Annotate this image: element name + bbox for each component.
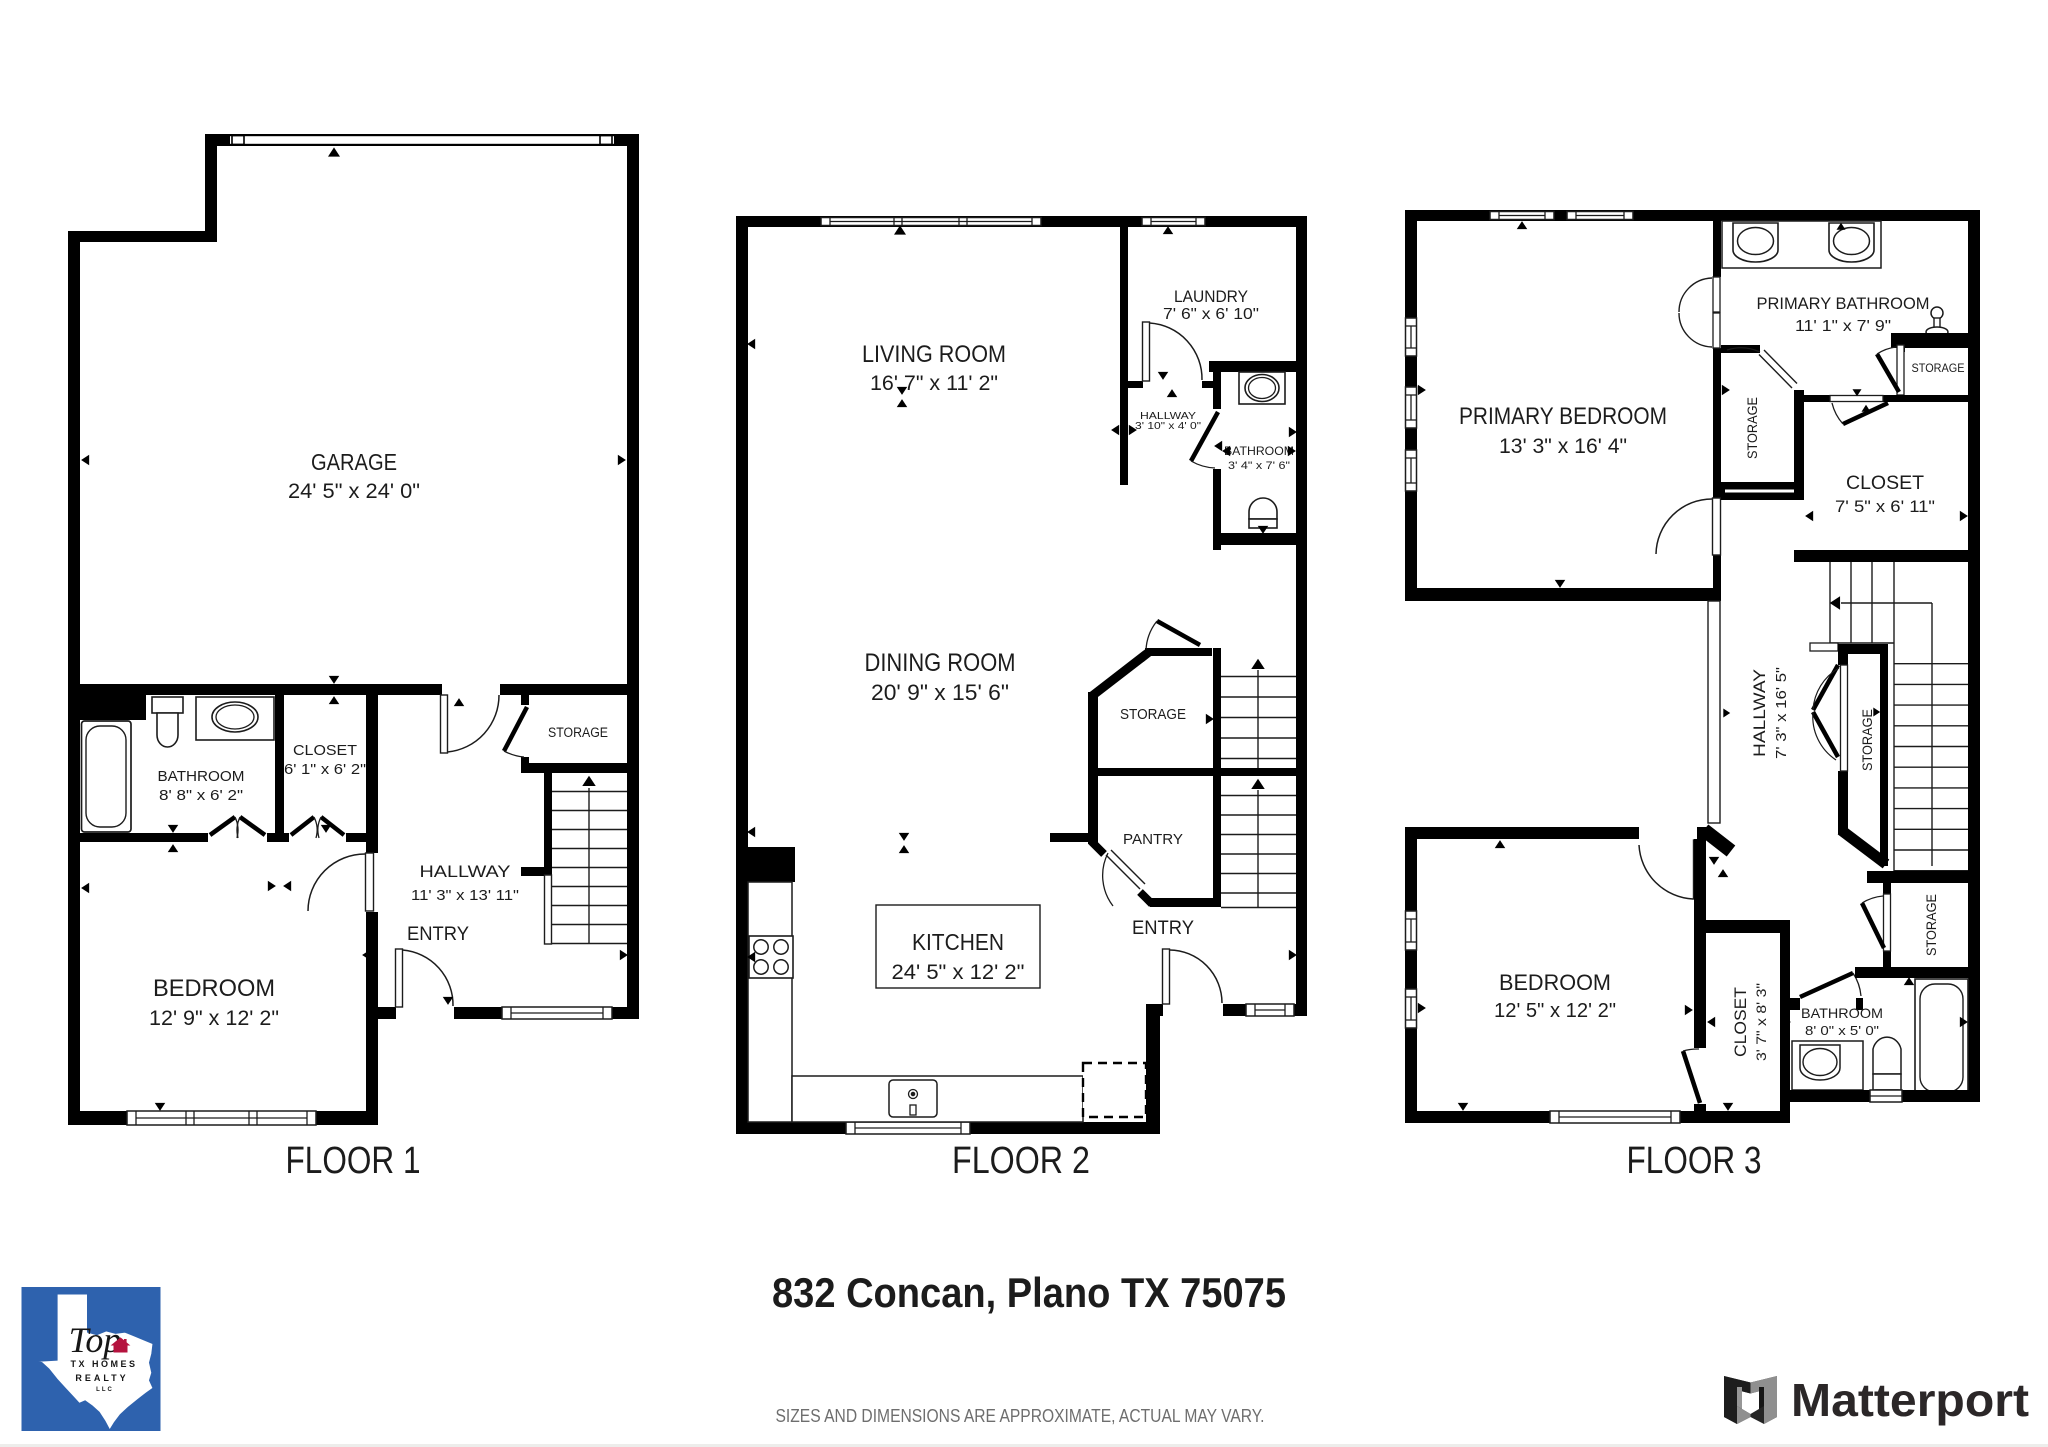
- svg-text:FLOOR 3: FLOOR 3: [1627, 1140, 1762, 1182]
- svg-text:7' 6" x 6' 10": 7' 6" x 6' 10": [1163, 306, 1259, 323]
- svg-text:BATHROOM: BATHROOM: [158, 768, 245, 785]
- svg-text:PRIMARY BATHROOM: PRIMARY BATHROOM: [1757, 294, 1930, 313]
- svg-text:13' 3" x 16' 4": 13' 3" x 16' 4": [1499, 435, 1627, 458]
- svg-text:7' 5" x 6' 11": 7' 5" x 6' 11": [1835, 497, 1935, 516]
- svg-text:3' 10" x 4' 0": 3' 10" x 4' 0": [1135, 421, 1202, 432]
- svg-text:16' 7" x 11' 2": 16' 7" x 11' 2": [870, 372, 998, 395]
- svg-text:11' 3" x 13' 11": 11' 3" x 13' 11": [411, 887, 519, 904]
- svg-text:8' 8" x 6' 2": 8' 8" x 6' 2": [159, 788, 243, 804]
- svg-text:SIZES AND DIMENSIONS ARE APPRO: SIZES AND DIMENSIONS ARE APPROXIMATE, AC…: [776, 1405, 1265, 1426]
- svg-text:REALTY: REALTY: [75, 1373, 128, 1383]
- svg-text:3' 7" x 8' 3": 3' 7" x 8' 3": [1753, 983, 1769, 1061]
- svg-text:BATHROOM: BATHROOM: [1801, 1005, 1883, 1021]
- svg-text:FLOOR 1: FLOOR 1: [286, 1140, 421, 1182]
- svg-text:6' 1" x 6' 2": 6' 1" x 6' 2": [284, 762, 366, 778]
- svg-text:3' 4" x 7' 6": 3' 4" x 7' 6": [1228, 460, 1290, 472]
- svg-text:HALLWAY: HALLWAY: [420, 862, 511, 881]
- svg-text:STORAGE: STORAGE: [1120, 706, 1186, 723]
- svg-text:11' 1" x 7' 9": 11' 1" x 7' 9": [1795, 318, 1891, 335]
- svg-text:LIVING ROOM: LIVING ROOM: [862, 341, 1006, 368]
- svg-text:PRIMARY BEDROOM: PRIMARY BEDROOM: [1459, 403, 1667, 430]
- svg-text:CLOSET: CLOSET: [1731, 987, 1750, 1057]
- svg-text:STORAGE: STORAGE: [1912, 363, 1965, 375]
- svg-text:DINING ROOM: DINING ROOM: [865, 649, 1016, 677]
- svg-text:ENTRY: ENTRY: [407, 924, 469, 945]
- svg-text:LLC: LLC: [96, 1387, 114, 1393]
- svg-text:STORAGE: STORAGE: [1924, 894, 1939, 956]
- svg-text:BEDROOM: BEDROOM: [1499, 970, 1611, 995]
- svg-text:12' 9" x 12' 2": 12' 9" x 12' 2": [149, 1007, 279, 1030]
- svg-text:24' 5" x 12' 2": 24' 5" x 12' 2": [892, 961, 1025, 984]
- svg-text:7' 3" x 16' 5": 7' 3" x 16' 5": [1773, 667, 1790, 759]
- svg-text:20' 9" x 15' 6": 20' 9" x 15' 6": [871, 680, 1009, 705]
- svg-text:PANTRY: PANTRY: [1123, 831, 1183, 848]
- svg-text:STORAGE: STORAGE: [1745, 397, 1760, 459]
- svg-text:BATHROOM: BATHROOM: [1224, 444, 1294, 458]
- svg-text:8' 0" x 5' 0": 8' 0" x 5' 0": [1805, 1023, 1879, 1038]
- svg-text:ENTRY: ENTRY: [1132, 918, 1194, 939]
- svg-text:LAUNDRY: LAUNDRY: [1174, 287, 1248, 306]
- svg-text:12' 5" x 12' 2": 12' 5" x 12' 2": [1494, 1000, 1616, 1022]
- svg-text:24' 5" x 24' 0": 24' 5" x 24' 0": [288, 480, 420, 503]
- svg-text:Top: Top: [69, 1320, 122, 1360]
- svg-text:STORAGE: STORAGE: [1860, 709, 1875, 771]
- svg-text:CLOSET: CLOSET: [1846, 473, 1924, 494]
- svg-text:KITCHEN: KITCHEN: [912, 929, 1004, 955]
- svg-text:BEDROOM: BEDROOM: [153, 975, 275, 1002]
- svg-text:CLOSET: CLOSET: [293, 742, 357, 759]
- svg-text:TX HOMES: TX HOMES: [70, 1359, 137, 1369]
- svg-text:832 Concan, Plano TX 75075: 832 Concan, Plano TX 75075: [772, 1269, 1286, 1316]
- svg-text:FLOOR 2: FLOOR 2: [952, 1140, 1090, 1182]
- svg-text:STORAGE: STORAGE: [548, 725, 608, 740]
- svg-text:Matterport: Matterport: [1791, 1374, 2029, 1426]
- svg-text:HALLWAY: HALLWAY: [1750, 669, 1769, 757]
- svg-text:GARAGE: GARAGE: [311, 449, 397, 475]
